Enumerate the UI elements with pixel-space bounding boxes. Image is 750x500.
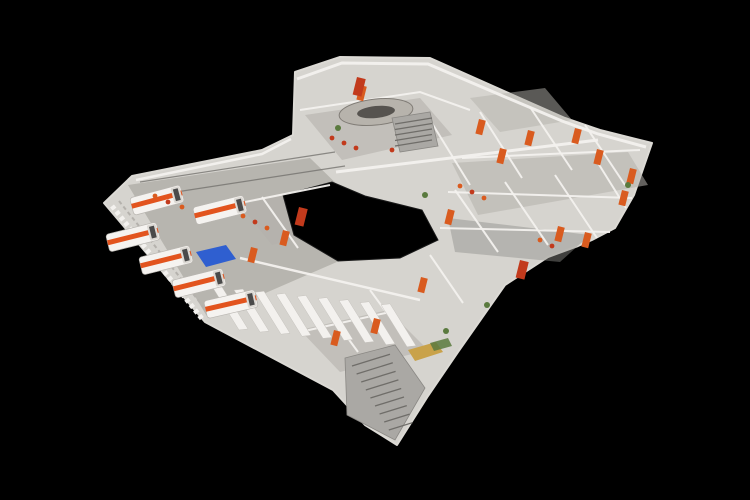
equipment-dot [550, 244, 555, 249]
equipment-dot [458, 184, 463, 189]
plant-dot [625, 182, 631, 188]
building-model[interactable] [104, 57, 652, 445]
equipment-dot [166, 200, 171, 205]
equipment-dot [538, 238, 543, 243]
equipment-dot [153, 194, 158, 199]
equipment-dot [482, 196, 487, 201]
equipment-dot [342, 141, 347, 146]
plant-dot [335, 125, 341, 131]
equipment-dot [470, 190, 475, 195]
mid-staircase [392, 112, 438, 152]
equipment-dot [241, 214, 246, 219]
equipment-dot [265, 226, 270, 231]
equipment-dot [330, 136, 335, 141]
equipment-dot [354, 146, 359, 151]
plant-dot [443, 328, 449, 334]
dollhouse-canvas[interactable] [0, 0, 750, 500]
plant-dot [422, 192, 428, 198]
equipment-dot [180, 205, 185, 210]
equipment-dot [390, 148, 395, 153]
equipment-dot [253, 220, 258, 225]
dollhouse-viewport[interactable] [0, 0, 750, 500]
plant-dot [484, 302, 490, 308]
